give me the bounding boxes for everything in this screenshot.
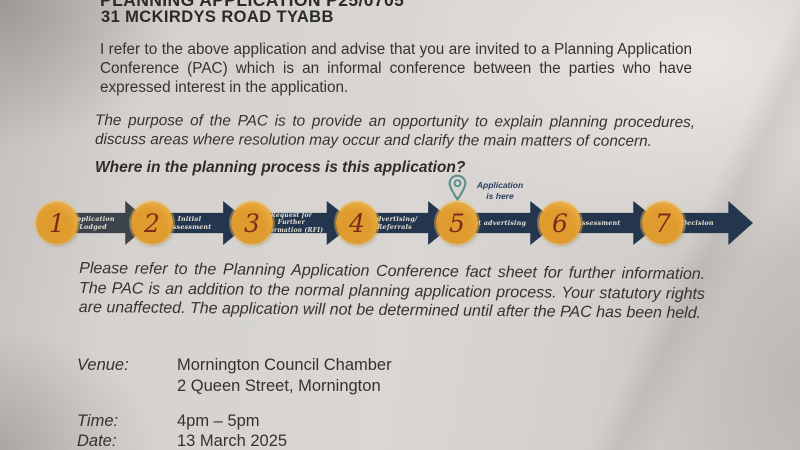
planning-process-diagram: Application is here Application Lodged I… [0,0,800,450]
venue-line1: Mornington Council Chamber [177,356,392,375]
time-label: Time: [77,412,118,431]
step-number: 1 [49,209,65,238]
step-number: 4 [349,209,365,238]
step-number: 6 [552,209,568,238]
date-label: Date: [77,432,116,450]
venue-line2: 2 Queen Street, Mornington [177,377,381,396]
step-number: 7 [655,209,671,238]
process-step-1-circle: 1 [36,202,78,244]
time-value: 4pm – 5pm [177,412,260,431]
fact-sheet-paragraph: Please refer to the Planning Application… [79,259,706,324]
letter-photo: PLANNING APPLICATION P25/0705 31 MCKIRDY… [0,0,800,450]
process-step-4-circle: 4 [336,202,378,244]
application-is-here-label: Application is here [474,180,526,201]
process-step-7-circle: 7 [642,202,684,244]
venue-label: Venue: [77,356,129,375]
step-number: 2 [144,209,160,238]
date-value: 13 March 2025 [177,432,287,450]
location-pin-icon [447,174,468,202]
step-number: 5 [449,209,465,238]
process-step-3-circle: 3 [231,202,273,244]
process-step-2-circle: 2 [131,202,173,244]
process-step-6-circle: 6 [539,202,581,244]
process-step-5-circle: 5 [436,202,478,244]
step-number: 3 [244,209,260,238]
